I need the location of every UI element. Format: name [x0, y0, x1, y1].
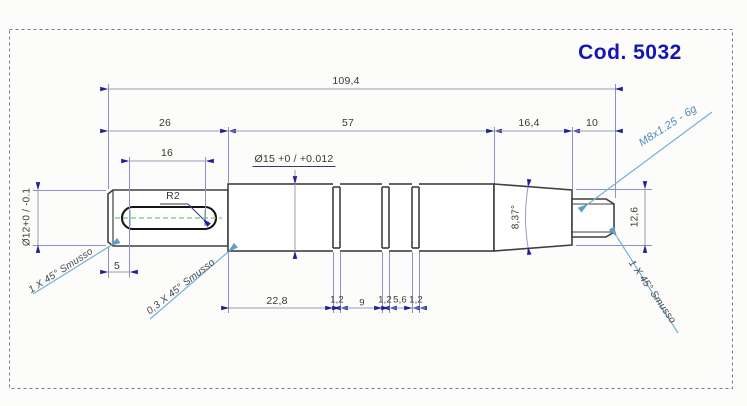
groove-3 [412, 183, 419, 253]
dim-keyway-offset: 5 [114, 260, 120, 272]
groove-2 [382, 183, 389, 253]
dim-taper-angle: 8,37° [511, 205, 522, 229]
groove-1 [333, 183, 340, 253]
dim-overall-length: 109,4 [332, 75, 359, 87]
drawing-code: Cod. 5032 [578, 41, 682, 65]
taper-section [494, 184, 572, 251]
thread-section [572, 199, 614, 237]
dim-groove-gap-1: 9 [359, 298, 364, 309]
dim-segment-16-4: 16,4 [518, 117, 539, 129]
dim-groove-2-width: 1,2 [378, 295, 392, 306]
dim-segment-26: 26 [159, 117, 171, 129]
dim-shoulder-diameter: 12,6 [630, 207, 641, 227]
dim-groove-1-width: 1,2 [330, 295, 344, 306]
dim-groove-gap-2: 5,6 [393, 295, 407, 306]
dim-keyway-length: 16 [161, 147, 173, 159]
dim-segment-57: 57 [342, 117, 354, 129]
dim-keyway-radius: R2 [166, 190, 180, 202]
dim-groove-3-width: 1,2 [409, 295, 423, 306]
dim-main-diameter: Ø15 +0 / +0.012 [253, 153, 336, 167]
drawing-canvas: Cod. 5032 109,4 26 57 16,4 10 16 Ø15 +0 … [0, 0, 747, 406]
dim-segment-10: 10 [586, 117, 598, 129]
dim-left-diameter: Ø12+0 / -0.1 [22, 188, 33, 246]
dim-groove-span: 22,8 [266, 295, 287, 307]
